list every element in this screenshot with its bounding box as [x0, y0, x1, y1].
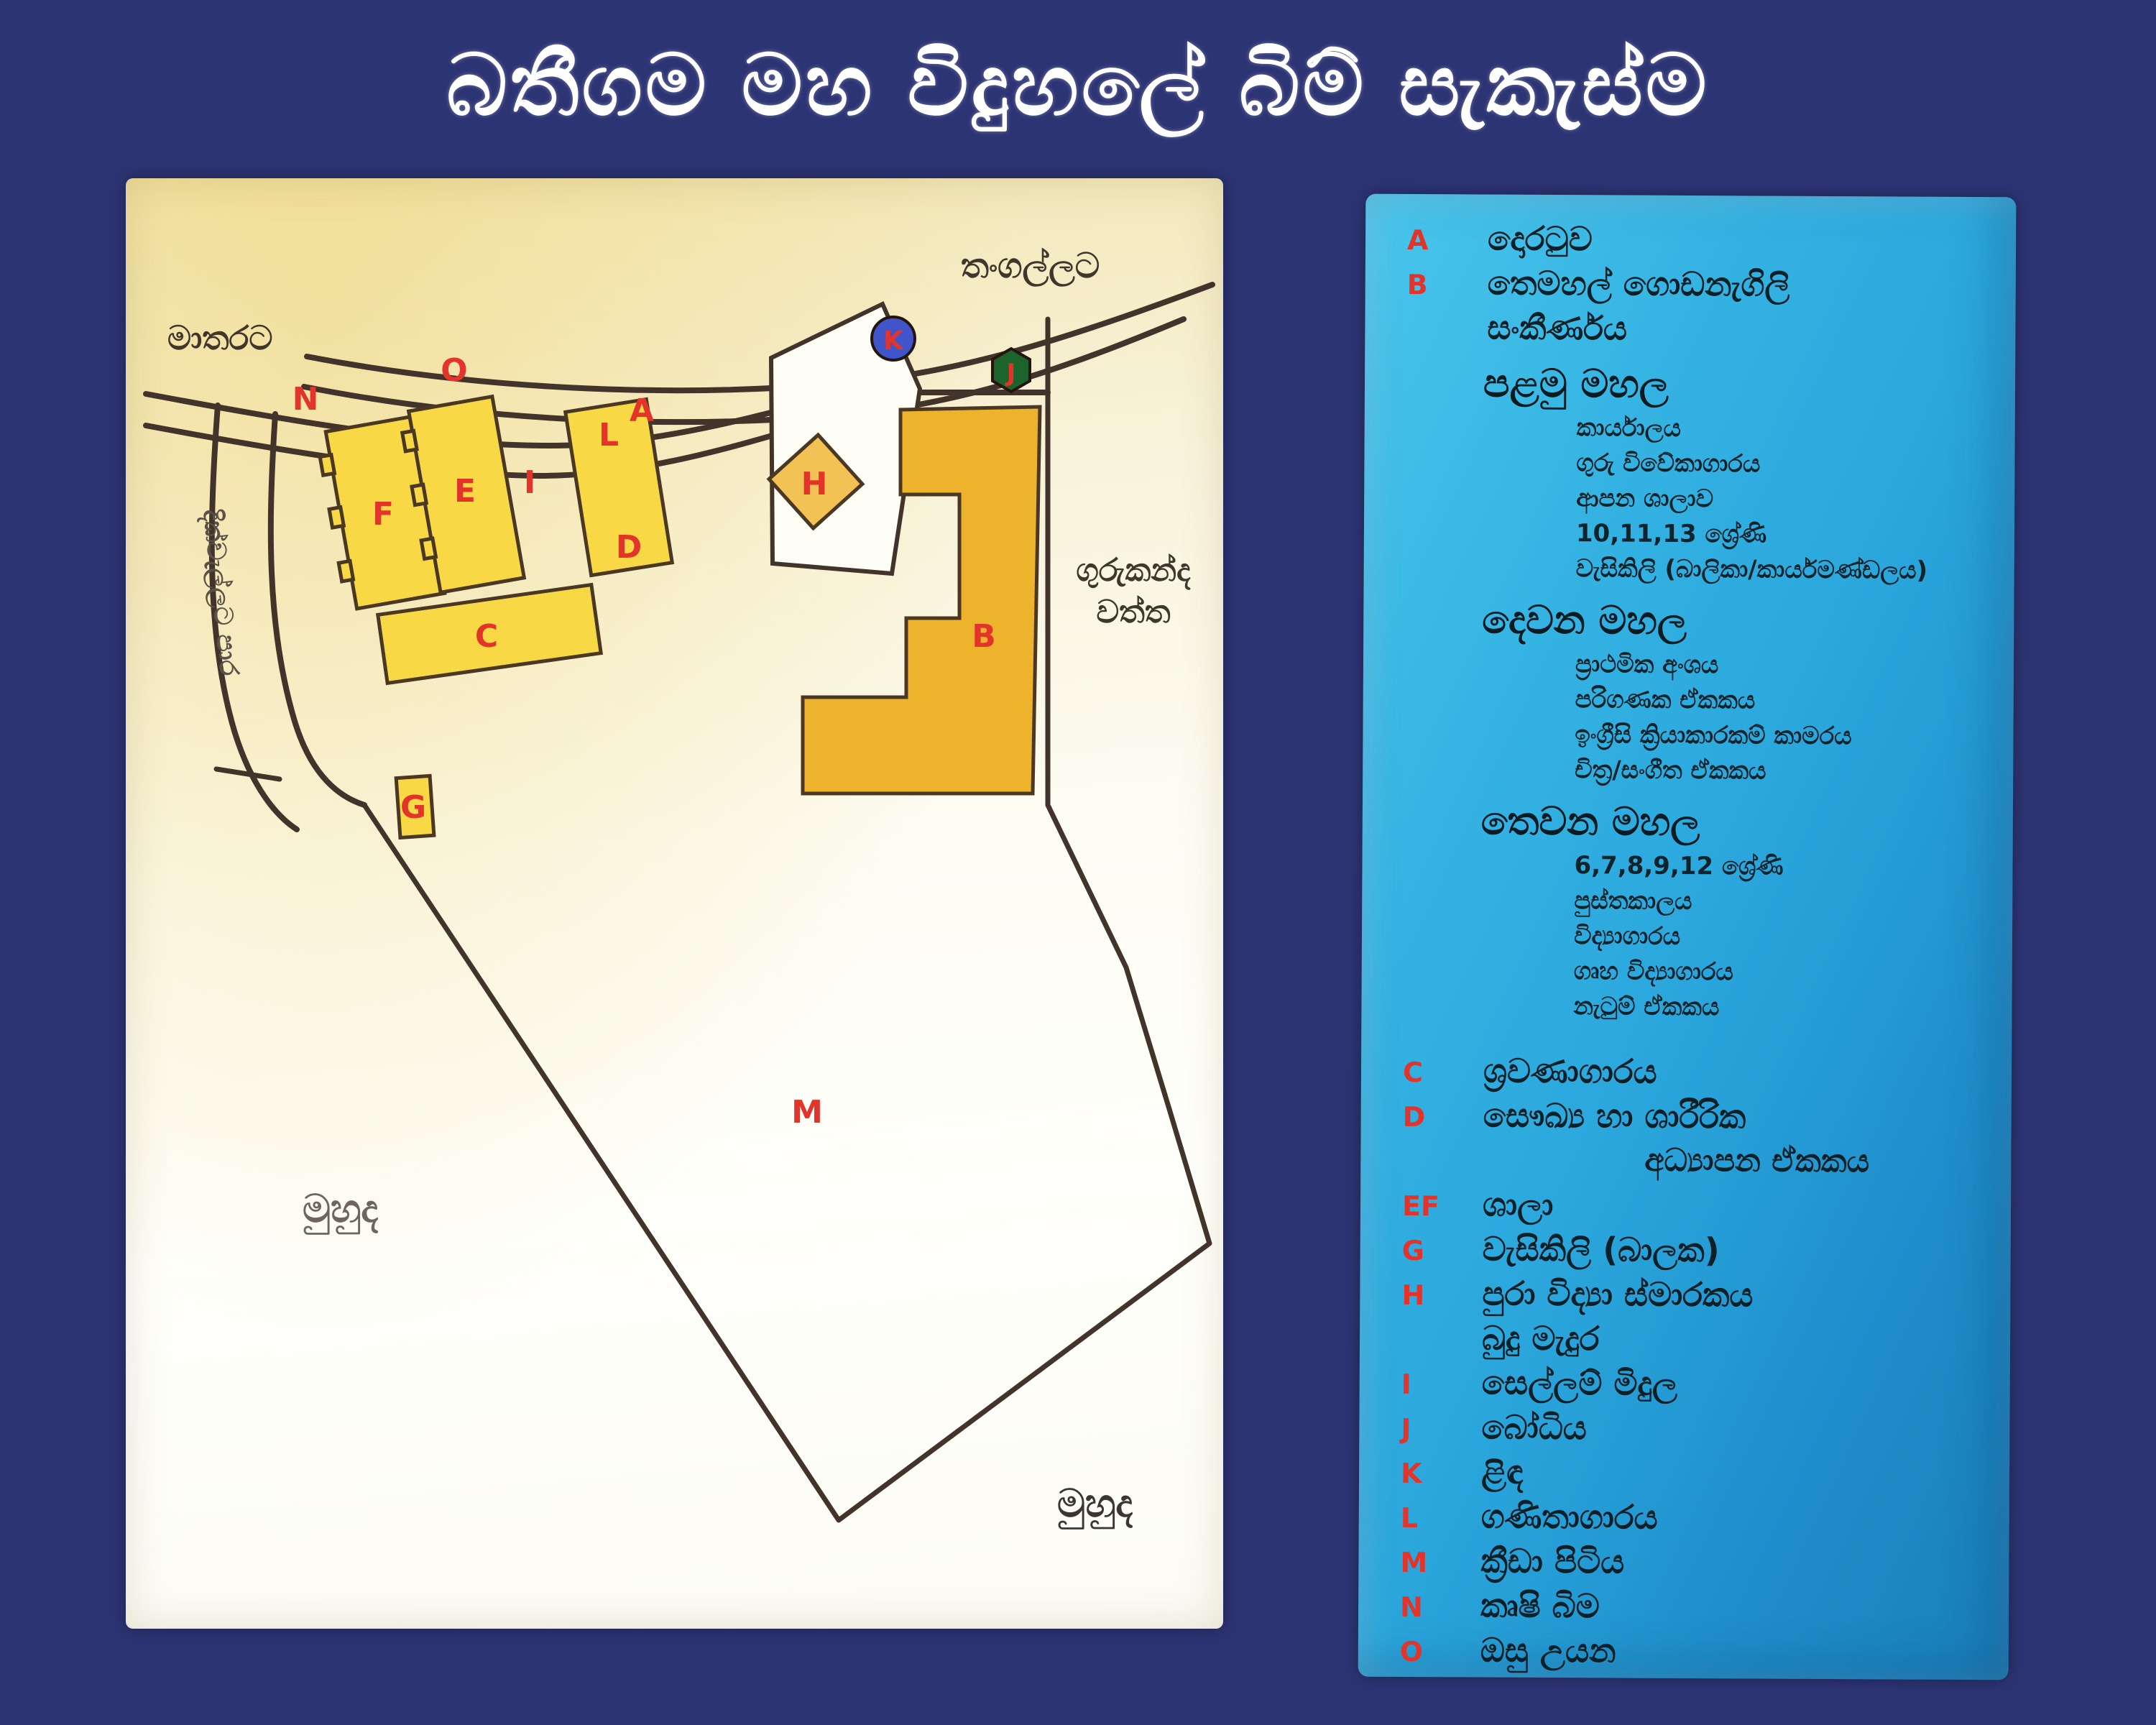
legend-text: ගෘහ විද්‍යාගාරය [1574, 954, 1733, 990]
legend-text: ගණිතාගාරය [1481, 1494, 1658, 1540]
legend-letter-i: I [1360, 1362, 1482, 1407]
legend-row-ef: EF ශාලා [1360, 1182, 2011, 1230]
marker-i: I [524, 464, 535, 501]
legend-row-m: M ක්‍රීඩා පිටිය [1358, 1538, 2009, 1586]
legend-text: 6,7,8,9,12 ශ්‍රේණි [1574, 848, 1783, 885]
legend-row-k: K ළිඳ [1359, 1449, 2009, 1497]
legend-text: පරිගණක ඒකකය [1575, 682, 1756, 718]
legend-text: ශ්‍රවණාගාරය [1483, 1049, 1657, 1094]
legend-letter-h: H [1360, 1273, 1482, 1318]
legend-subitem: පුස්තකාලය [1362, 883, 2012, 921]
legend-subitem: චිත්‍ර/සංගීත ඒකකය [1363, 752, 2013, 791]
marker-h: H [801, 466, 828, 502]
legend-letter-g: G [1360, 1228, 1483, 1274]
legend-letter-ef: EF [1360, 1184, 1483, 1229]
legend-text: ගුරු විවේකාගාරය [1576, 446, 1760, 482]
marker-m: M [791, 1094, 823, 1131]
legend-heading-third-floor: තෙවන මහල [1363, 794, 2013, 851]
campus-map-drawing: A N O F E I L D C G H K J B M මාතරට තංගල… [126, 178, 1223, 1629]
legend-text: කාර්යාලය [1577, 410, 1682, 446]
legend-row-c: C ශ්‍රවණාගාරය [1361, 1048, 2012, 1096]
legend-letter-l: L [1359, 1496, 1481, 1541]
legend-text: සෞඛ්‍ය හා ශාරීරික [1483, 1093, 1746, 1139]
legend-subitem: ආපන ශාලාව [1364, 480, 2014, 519]
marker-l: L [599, 417, 619, 454]
to-matara-label: මාතරට [167, 318, 272, 357]
legend-text: සෙල්ලම් මිදුල [1482, 1361, 1678, 1406]
legend-text: වැසිකිලි (බාලිකා/කාර්යමණ්ඩලය) [1576, 551, 1928, 589]
legend-letter-d: D [1361, 1095, 1483, 1140]
marker-c: C [475, 618, 498, 655]
marker-n: N [292, 381, 319, 418]
legend-row-i: I සෙල්ලම් මිදුල [1360, 1360, 2010, 1408]
marker-b: B [972, 618, 996, 655]
legend-text: පුස්තකාලය [1574, 883, 1692, 919]
legend-text: තෙමහල් ගොඩනැගිලි [1488, 261, 1790, 307]
legend-text: පුරා විද්‍යා ස්මාරකය [1482, 1271, 1753, 1317]
legend-text: ආපන ශාලාව [1576, 481, 1713, 517]
gurukanda-watta-label-line1: ගුරුකන්ද [1076, 552, 1191, 590]
marker-k: K [883, 326, 904, 356]
marker-j: J [1005, 359, 1016, 387]
legend-row-a: A දොරටුව [1365, 216, 2016, 264]
legend-row-h: H පුරා විද්‍යා ස්මාරකය [1360, 1271, 2010, 1319]
legend-text: සංකීර්ණය [1487, 305, 1627, 351]
to-tangalle-label: තංගල්ලට [961, 246, 1100, 287]
legend-row-j: J බෝධිය [1359, 1404, 2009, 1453]
side-road-label: දික්වැල්ලට පාර [195, 508, 244, 678]
legend-row-b-cont: සංකීර්ණය [1365, 305, 2015, 353]
legend-text: ප්‍රාථමික අංශය [1575, 647, 1719, 683]
legend-letter-o: O [1358, 1629, 1480, 1675]
legend-subitem: 6,7,8,9,12 ශ්‍රේණි [1362, 847, 2012, 886]
legend-text: දොරටුව [1488, 216, 1593, 262]
legend-subitem: ප්‍රාථමික අංශය [1363, 646, 2014, 685]
legend-text: ක්‍රීඩා පිටිය [1480, 1539, 1624, 1584]
legend-text: විද්‍යාගාරය [1574, 919, 1680, 954]
gurukanda-watta-label-line2: වත්ත [1096, 594, 1170, 630]
legend-text: ශාලා [1483, 1182, 1554, 1228]
legend-row-o: O ඔසු උයන [1358, 1627, 2009, 1675]
legend-row-g: G වැසිකිලි (බාලක) [1360, 1226, 2011, 1274]
sea-label-right: මුහුද [1057, 1481, 1133, 1529]
legend-text: නැටුම් ඒකකය [1573, 989, 1719, 1025]
legend-letter-n: N [1358, 1585, 1480, 1630]
legend-text: අධ්‍යාපන ඒකකය [1644, 1138, 1869, 1184]
legend-subitem: කාර්යාලය [1365, 410, 2015, 448]
legend-heading-text: දෙවන මහල [1482, 594, 1687, 648]
legend-row-b: B තෙමහල් ගොඩනැගිලි [1365, 260, 2016, 308]
legend-row-l: L ගණිතාගාරය [1359, 1494, 2009, 1542]
marker-e: E [454, 473, 476, 510]
legend-subitem: ඉංග්‍රීසි ක්‍රියාකාරකම් කාමරය [1363, 717, 2013, 755]
legend-row-d-cont: අධ්‍යාපන ඒකකය [1360, 1137, 2011, 1185]
legend-panel: A දොරටුව B තෙමහල් ගොඩනැගිලි සංකීර්ණය පළම… [1358, 194, 2017, 1680]
legend-subitem: ගුරු විවේකාගාරය [1364, 445, 2014, 484]
sea-label-left: මුහුද [303, 1186, 378, 1235]
marker-a: A [630, 392, 654, 429]
legend-row-d: D සෞඛ්‍ය හා ශාරීරික [1361, 1092, 2012, 1141]
legend-subitem: වැසිකිලි (බාලිකා/කාර්යමණ්ඩලය) [1364, 551, 2014, 589]
marker-g: G [400, 789, 426, 826]
legend-letter-m: M [1358, 1540, 1480, 1586]
legend-subitem: විද්‍යාගාරය [1362, 918, 2012, 957]
legend-text: බෝධිය [1481, 1405, 1587, 1450]
legend-text: වැසිකිලි (බාලක) [1483, 1227, 1720, 1273]
legend-text: ඉංග්‍රීසි ක්‍රියාකාරකම් කාමරය [1575, 717, 1851, 754]
page-title: බතීගම මහ විදුහලේ බිම් සැකැස්ම [0, 13, 2156, 157]
legend-heading-text: තෙවන මහල [1481, 794, 1700, 849]
legend-text: ළිඳ [1481, 1450, 1524, 1494]
legend-letter-c: C [1361, 1050, 1483, 1095]
legend-row-n: N කෘෂි බිම [1358, 1583, 2009, 1631]
signboard-photo: { "title": "බතීගම මහ විදුහලේ බිම් සැකැස්… [0, 0, 2156, 1725]
legend-text: 10,11,13 ශ්‍රේණි [1576, 516, 1767, 552]
marker-d: D [616, 529, 642, 566]
legend-letter-b: B [1365, 262, 1488, 308]
legend-subitem: නැටුම් ඒකකය [1361, 988, 2012, 1027]
legend-letter-k: K [1359, 1451, 1481, 1496]
legend-heading-text: පළමු මහල [1483, 357, 1669, 411]
legend-subitem: 10,11,13 ශ්‍රේණි [1364, 515, 2014, 554]
legend-subitem: පරිගණක ඒකකය [1363, 681, 2014, 720]
legend-row-h-cont: බුදු මැදුර [1360, 1315, 2010, 1363]
marker-f: F [372, 496, 394, 533]
campus-map-panel: A N O F E I L D C G H K J B M මාතරට තංගල… [126, 178, 1223, 1629]
legend-letter-a: A [1365, 218, 1488, 263]
legend-letter-j: J [1359, 1407, 1481, 1452]
legend-text: කෘෂි බිම [1480, 1583, 1600, 1629]
legend-subitem: ගෘහ විද්‍යාගාරය [1362, 953, 2012, 992]
legend-text: ඔසු උයන [1480, 1628, 1616, 1673]
legend-text: චිත්‍ර/සංගීත ඒකකය [1575, 753, 1766, 788]
legend-heading-first-floor: පළමු මහල [1365, 356, 2015, 413]
legend-heading-second-floor: දෙවන මහල [1363, 593, 2014, 650]
legend-text: බුදු මැදුර [1482, 1316, 1600, 1361]
marker-o: O [441, 352, 467, 389]
